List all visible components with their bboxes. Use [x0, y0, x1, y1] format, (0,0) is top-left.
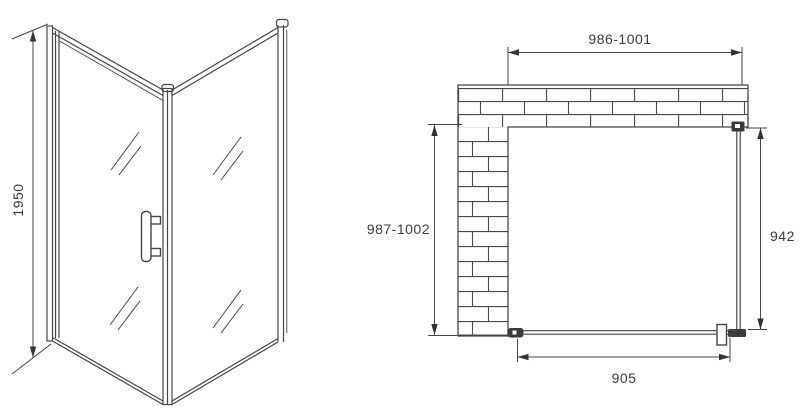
brick-wall-top — [458, 88, 748, 127]
handle-plan — [717, 325, 727, 346]
brick-wall-left — [458, 127, 508, 335]
brick-wall — [458, 85, 748, 336]
dimension-width-top-label: 986-1001 — [588, 31, 651, 47]
dimension-depth-left-label: 987-1002 — [367, 221, 430, 237]
side-panel-top-frame — [172, 28, 278, 96]
dimension-height: 1950 — [10, 24, 51, 374]
door-handle — [142, 212, 161, 262]
side-panel-plan — [728, 122, 746, 338]
hinge-post — [47, 26, 59, 341]
dimension-side-panel-label: 942 — [770, 228, 795, 244]
drawing-svg: 1950 — [0, 0, 800, 414]
dimension-door: 905 — [518, 338, 731, 386]
dimension-depth-left: 987-1002 — [367, 125, 462, 336]
dimension-width-top: 986-1001 — [508, 31, 742, 85]
side-panel-post — [277, 20, 289, 343]
bottom-frames — [53, 338, 279, 405]
dimension-side-panel: 942 — [746, 128, 795, 330]
dimension-door-label: 905 — [612, 370, 637, 386]
technical-drawing: 1950 — [0, 0, 800, 414]
dimension-height-label: 1950 — [10, 183, 26, 216]
corner-post — [162, 85, 174, 405]
plan-view: 986-1001 987-1002 942 905 — [367, 31, 795, 386]
glass-shine-marks — [110, 132, 243, 333]
perspective-view: 1950 — [10, 20, 288, 405]
door-plan — [508, 325, 738, 346]
door-top-frame — [53, 28, 164, 101]
